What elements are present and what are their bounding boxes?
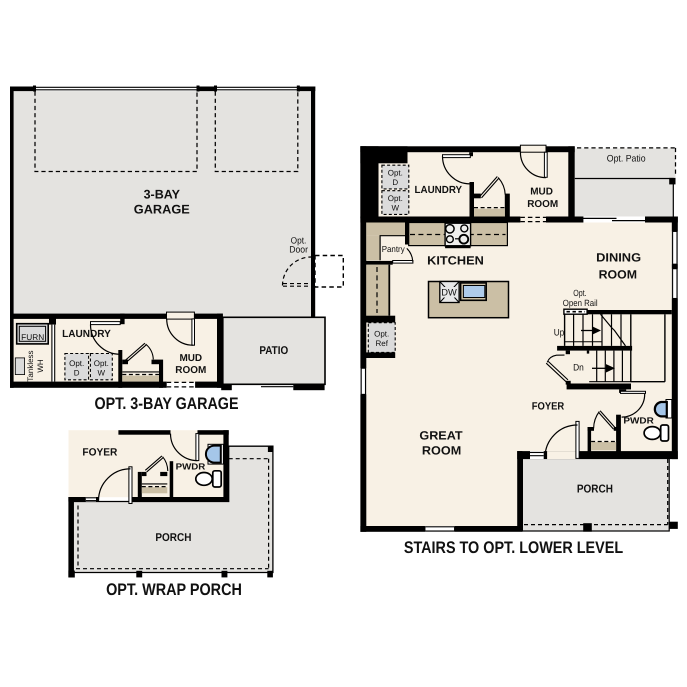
- svg-text:Pantry: Pantry: [382, 244, 406, 254]
- svg-text:W: W: [98, 369, 106, 378]
- svg-text:Tankless: Tankless: [26, 350, 35, 381]
- svg-text:FURN: FURN: [21, 332, 44, 342]
- svg-text:OPT. WRAP PORCH: OPT. WRAP PORCH: [106, 580, 242, 599]
- svg-text:LAUNDRY: LAUNDRY: [62, 329, 111, 340]
- svg-text:DINING: DINING: [596, 251, 641, 265]
- svg-text:Opt.: Opt.: [388, 194, 403, 203]
- svg-text:GREAT: GREAT: [419, 428, 463, 442]
- svg-text:DW: DW: [441, 288, 457, 299]
- svg-text:WH: WH: [36, 359, 45, 373]
- svg-text:Opt.: Opt.: [573, 288, 586, 298]
- svg-text:ROOM: ROOM: [599, 268, 637, 282]
- svg-text:MUD: MUD: [179, 353, 202, 364]
- svg-text:PORCH: PORCH: [155, 532, 191, 544]
- svg-text:Ref: Ref: [375, 339, 388, 348]
- svg-text:Open Rail: Open Rail: [563, 298, 598, 308]
- svg-text:ROOM: ROOM: [175, 365, 206, 376]
- svg-text:3-BAY: 3-BAY: [144, 188, 181, 202]
- svg-text:FOYER: FOYER: [532, 400, 565, 412]
- svg-text:LAUNDRY: LAUNDRY: [415, 185, 463, 196]
- svg-text:D: D: [74, 369, 80, 378]
- svg-text:ROOM: ROOM: [422, 443, 461, 457]
- svg-text:Opt.: Opt.: [69, 359, 84, 368]
- svg-text:PWDR: PWDR: [176, 462, 206, 472]
- svg-text:KITCHEN: KITCHEN: [427, 254, 484, 268]
- svg-text:D: D: [392, 178, 398, 187]
- svg-text:STAIRS TO OPT. LOWER LEVEL: STAIRS TO OPT. LOWER LEVEL: [404, 538, 623, 557]
- svg-text:PWDR: PWDR: [623, 416, 654, 426]
- svg-text:FOYER: FOYER: [82, 447, 117, 459]
- svg-text:W: W: [392, 204, 400, 213]
- svg-text:ROOM: ROOM: [527, 199, 558, 210]
- svg-text:GARAGE: GARAGE: [134, 203, 190, 217]
- svg-text:Opt.: Opt.: [388, 169, 403, 178]
- svg-text:OPT. 3-BAY GARAGE: OPT. 3-BAY GARAGE: [95, 394, 239, 413]
- svg-text:PATIO: PATIO: [259, 345, 288, 357]
- svg-text:MUD: MUD: [530, 187, 553, 198]
- svg-text:Opt. Patio: Opt. Patio: [607, 154, 646, 165]
- svg-text:Up: Up: [554, 327, 565, 338]
- svg-text:Opt.: Opt.: [94, 359, 109, 368]
- svg-text:Dn: Dn: [573, 362, 584, 373]
- svg-text:Opt.: Opt.: [374, 330, 389, 339]
- svg-text:PORCH: PORCH: [577, 484, 613, 496]
- svg-text:Door: Door: [289, 245, 308, 255]
